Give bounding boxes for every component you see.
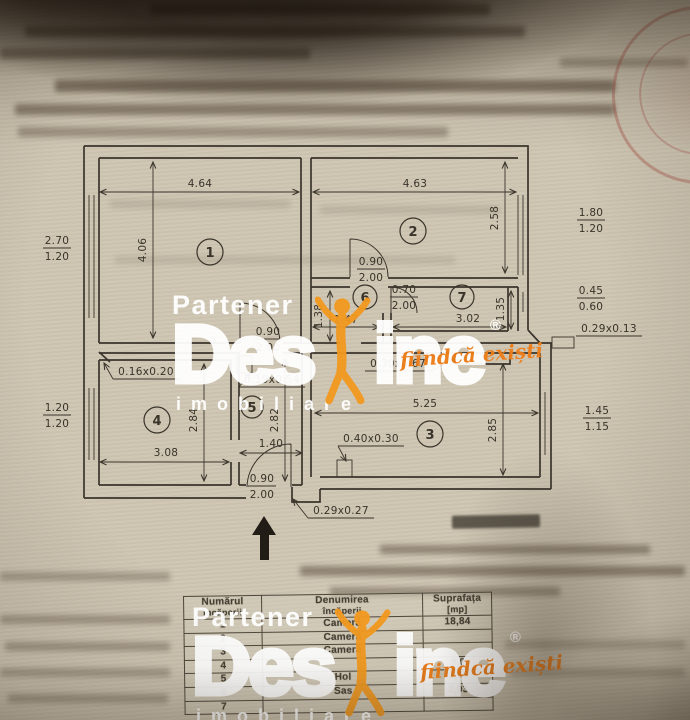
window-right-room7-bottom: 0.60 bbox=[579, 301, 604, 313]
door-entrance-height: 2.00 bbox=[250, 489, 275, 501]
dim-room1-width: 4.64 bbox=[188, 178, 213, 190]
watermark-brand-des: Des bbox=[172, 323, 313, 387]
label-vent-right: 0.29x0.13 bbox=[581, 323, 637, 335]
label-pillar-room3: 0.40x0.30 bbox=[343, 433, 399, 445]
door-room2-width: 0.90 bbox=[359, 256, 384, 268]
window-right-room2-top: 1.80 bbox=[579, 207, 604, 219]
watermark-plan: Partener Des ine ® fiindcă exiști imobil… bbox=[172, 292, 532, 413]
dark-smudge-mark bbox=[452, 514, 540, 529]
vent-right-symbol bbox=[552, 337, 574, 348]
watermark-brand-des: Des bbox=[192, 635, 333, 699]
dim-room2-height: 2.58 bbox=[489, 206, 501, 231]
dim-room3-height: 2.85 bbox=[487, 418, 499, 443]
dim-room5-width: 1.40 bbox=[259, 438, 284, 450]
window-right-room3-bottom: 1.15 bbox=[585, 421, 610, 433]
dim-room2-width: 4.63 bbox=[403, 178, 428, 190]
brand-person-icon bbox=[335, 605, 391, 720]
label-vent-room4: 0.16x0.20 bbox=[118, 366, 174, 378]
dim-room1-height: 4.06 bbox=[137, 238, 149, 263]
label-entrance-step: 0.29x0.27 bbox=[313, 505, 369, 517]
watermark-table: Partener Des ine ® fiindcă exiști imobil… bbox=[192, 604, 552, 720]
window-left-room4-top: 1.20 bbox=[45, 402, 70, 414]
window-right-room2-bottom: 1.20 bbox=[579, 223, 604, 235]
door-room2-height: 2.00 bbox=[359, 272, 384, 284]
registered-mark: ® bbox=[510, 629, 521, 646]
scanned-floor-plan-photo: 4.64 4.06 4.63 2.58 1.38 1.47 3.02 1.35 … bbox=[0, 0, 690, 720]
room-2-number: 2 bbox=[408, 225, 417, 240]
dim-room4-width: 3.08 bbox=[154, 447, 179, 459]
room-4-number: 4 bbox=[152, 414, 161, 429]
registered-mark: ® bbox=[490, 317, 501, 334]
entrance-arrow-icon bbox=[252, 516, 276, 560]
window-right-room7-top: 0.45 bbox=[579, 285, 604, 297]
room-1-number: 1 bbox=[205, 246, 214, 261]
window-left-room4-bottom: 1.20 bbox=[45, 418, 70, 430]
room3-pillar bbox=[337, 460, 352, 477]
window-left-room1-top: 2.70 bbox=[45, 235, 70, 247]
window-left-room1-bottom: 1.20 bbox=[45, 251, 70, 263]
brand-person-icon bbox=[315, 293, 371, 411]
room-3-number: 3 bbox=[425, 428, 434, 443]
window-right-room3-top: 1.45 bbox=[585, 405, 610, 417]
door-entrance-width: 0.90 bbox=[250, 473, 275, 485]
